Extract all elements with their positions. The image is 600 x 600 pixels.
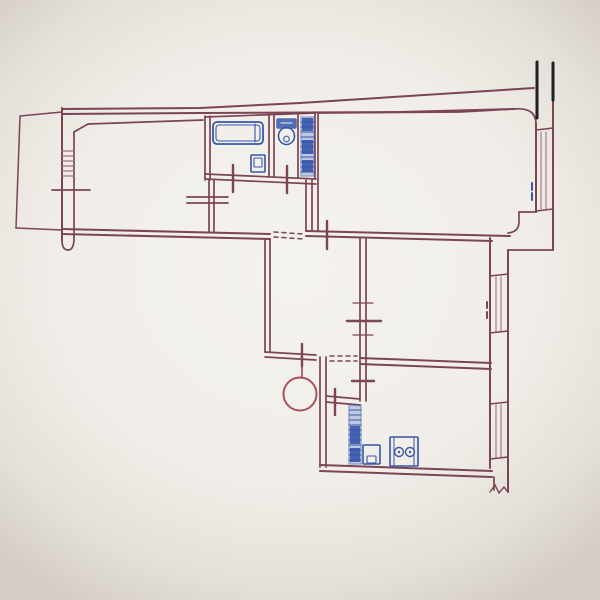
hall-top-wall-right-inner — [306, 236, 492, 241]
balcony-top-edge — [20, 112, 62, 116]
hall-bottom-wall-inner — [265, 357, 316, 360]
living-room-corner-chamfer — [74, 124, 88, 132]
kitchen-sink — [363, 445, 380, 464]
toilet-bowl-inner — [284, 136, 290, 142]
vent-duct-solid-1 — [302, 118, 313, 131]
right-window-bottom-sill — [536, 209, 553, 211]
kitchen-counter-solid-1 — [350, 426, 360, 444]
right-wall-step-inner — [508, 212, 519, 233]
pantry-bottom-wall-outer — [326, 396, 360, 399]
hall-opening-dashes-1 — [274, 232, 304, 234]
left-wall-rounded-end — [62, 238, 74, 250]
bathtub-inner-rim — [216, 125, 260, 141]
middle-room-bottom-wall-outer — [360, 358, 491, 363]
stove-burner-left-dot — [398, 451, 400, 453]
vent-duct-solid-3 — [302, 160, 313, 172]
door-swing-circle — [284, 378, 317, 411]
kitchen-window-bottom-sill — [490, 457, 508, 459]
floor-plan-scan — [0, 0, 600, 600]
living-room-bottom-wall-outer — [62, 229, 270, 234]
middle-room-bottom-wall-inner — [360, 364, 491, 369]
hall-top-wall-right-outer — [306, 231, 510, 236]
balcony-left-edge — [16, 116, 20, 228]
middle-window-bottom-sill — [490, 331, 508, 333]
bathroom-bottom-wall-outer — [205, 174, 316, 179]
kitchen-sink-inner — [367, 456, 376, 463]
hall-bottom-wall-outer — [265, 352, 316, 355]
kitchen-bottom-wall-inner — [320, 471, 492, 477]
right-window-top-sill — [536, 128, 553, 130]
top-wall-outer — [62, 88, 534, 109]
floor-plan-drawing — [0, 0, 600, 600]
stove-burner-right-dot — [409, 451, 411, 453]
vent-duct-solid-2 — [302, 140, 313, 154]
kitchen-counter-solid-2 — [350, 448, 360, 462]
wall-end-break — [490, 485, 508, 493]
balcony-bottom-edge — [16, 228, 62, 230]
middle-window-top-sill — [490, 274, 508, 276]
bathroom-bottom-wall-inner — [205, 179, 316, 184]
living-room-bottom-wall-inner — [62, 234, 270, 239]
kitchen-window-top-sill — [490, 402, 508, 404]
hall-opening-dashes-2 — [274, 237, 304, 239]
living-room-ceiling-line — [88, 120, 203, 124]
bathroom-sink-inner — [254, 158, 262, 167]
